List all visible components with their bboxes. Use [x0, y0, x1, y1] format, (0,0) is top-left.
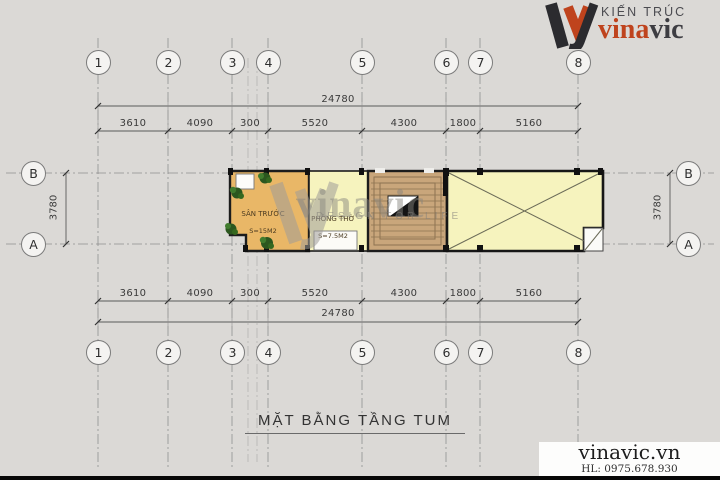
footer-hotline: HL: 0975.678.930 — [539, 463, 720, 475]
footer-contact: vinavic.vn HL: 0975.678.930 — [539, 442, 720, 477]
drawing-sheet: SÂN TRƯỚC S=15M2 PHÒNG THỜ S=7.5M2 vinav… — [0, 0, 720, 480]
watermark-tagline: DESIGN FOR LIFE — [316, 211, 462, 222]
watermark-mark-svg — [0, 0, 720, 480]
bottom-black-bar — [0, 476, 720, 480]
footer-website: vinavic.vn — [539, 442, 720, 463]
